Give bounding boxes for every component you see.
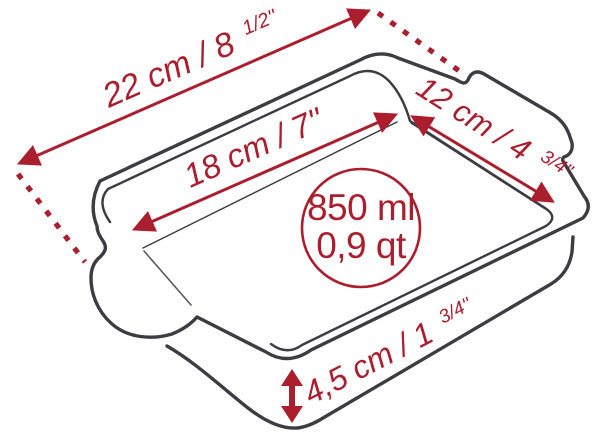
- dim-outer-length-main: 22 cm / 8: [96, 25, 240, 116]
- dish-floor-corner-seam: [144, 251, 191, 305]
- dim-wall-height-label: 4,5 cm / 1 3/4'': [298, 292, 483, 411]
- bakeware-dimension-diagram: 850 ml 0,9 qt 22 cm / 8 1/2'' 18 cm / 7'…: [0, 0, 600, 432]
- capacity-imperial-label: 0,9 qt: [316, 225, 407, 266]
- dim-inner-length-main: 18 cm / 7'': [178, 100, 330, 195]
- capacity-metric-label: 850 ml: [307, 187, 415, 228]
- dim-outer-length-fraction: 1/2'': [239, 5, 281, 40]
- dim-outer-length-extension-left: [18, 174, 85, 262]
- dim-outer-length-line: [20, 11, 368, 163]
- diagram-canvas: 850 ml 0,9 qt 22 cm / 8 1/2'' 18 cm / 7'…: [0, 0, 600, 432]
- dim-wall-height-fraction: 3/4'': [435, 294, 476, 329]
- dim-inner-length-label: 18 cm / 7'': [178, 100, 330, 195]
